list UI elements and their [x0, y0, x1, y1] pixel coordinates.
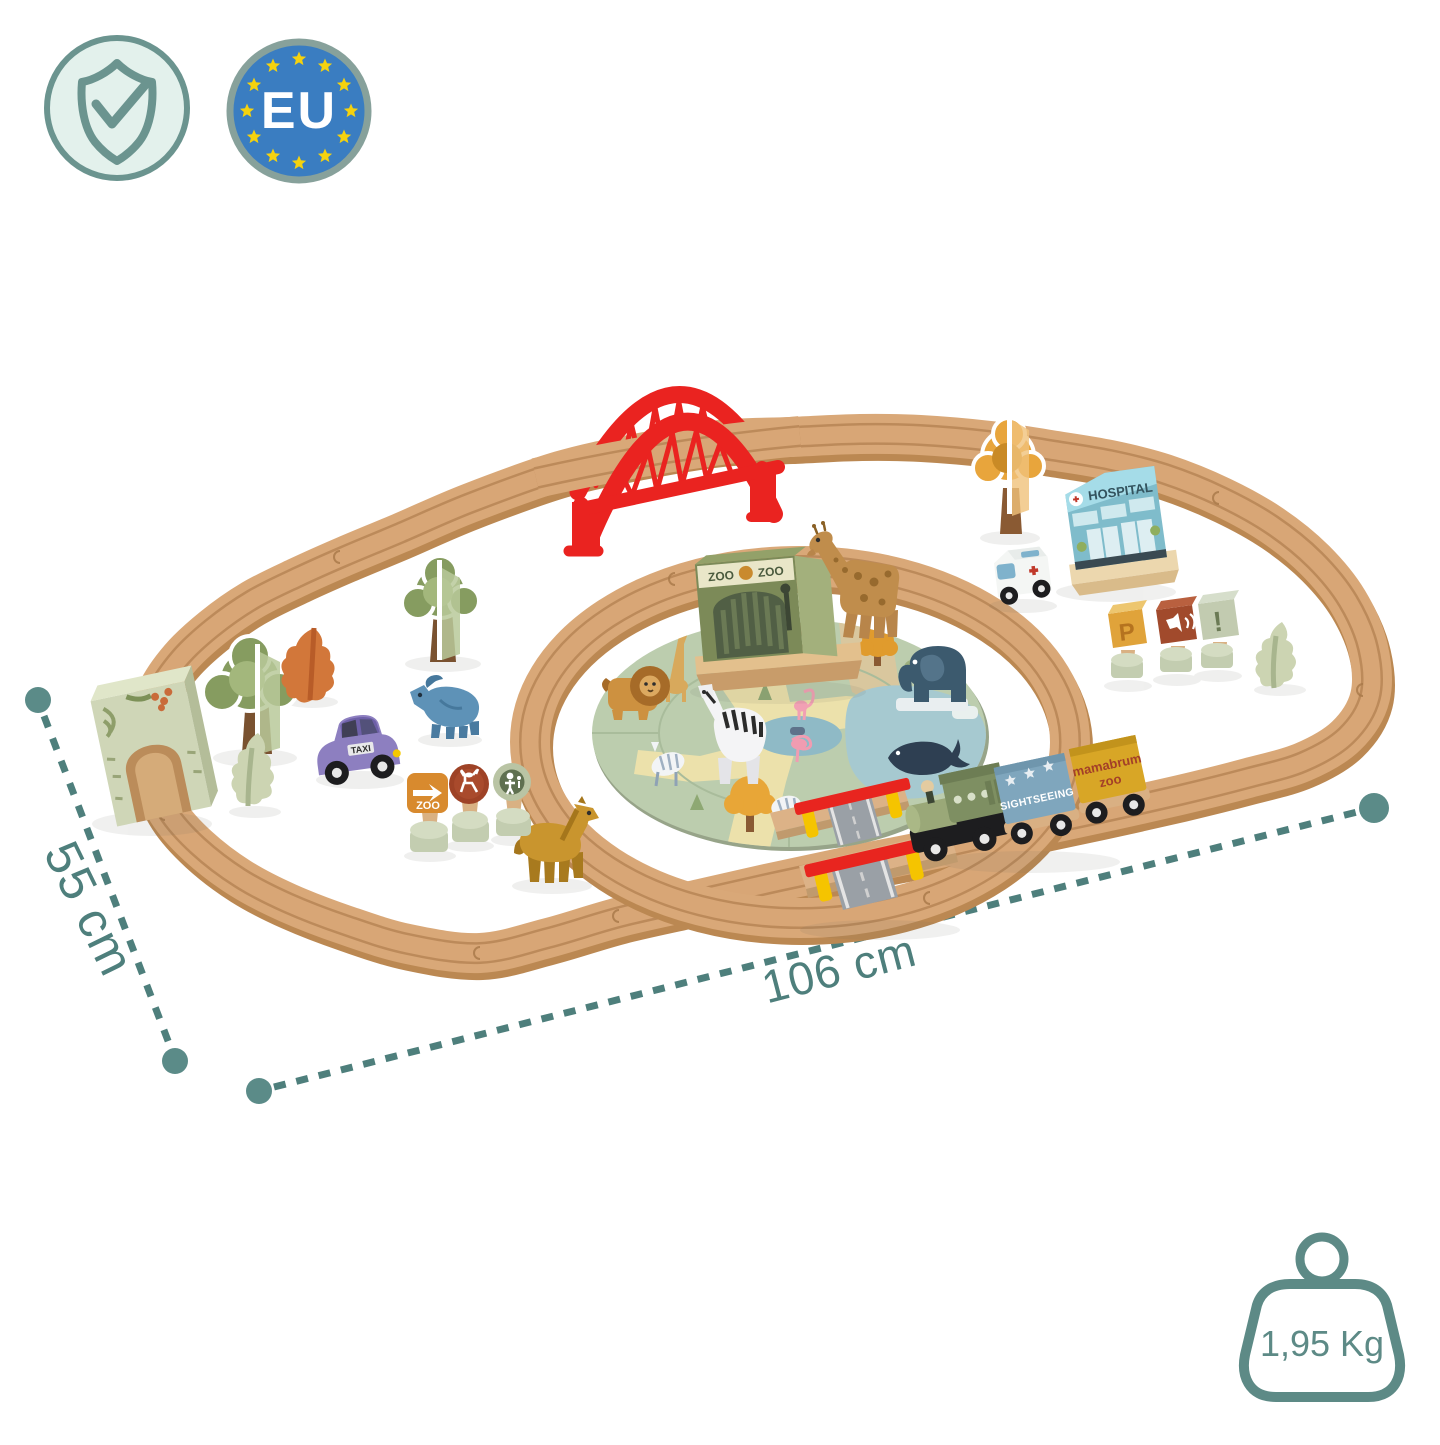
svg-text:ZOO: ZOO [757, 564, 784, 580]
svg-text:1,95 Kg: 1,95 Kg [1260, 1323, 1384, 1364]
svg-text:P: P [1117, 618, 1136, 647]
svg-text:ZOO: ZOO [416, 800, 440, 812]
svg-text:ZOO: ZOO [707, 568, 734, 584]
svg-text:EU: EU [261, 82, 337, 140]
